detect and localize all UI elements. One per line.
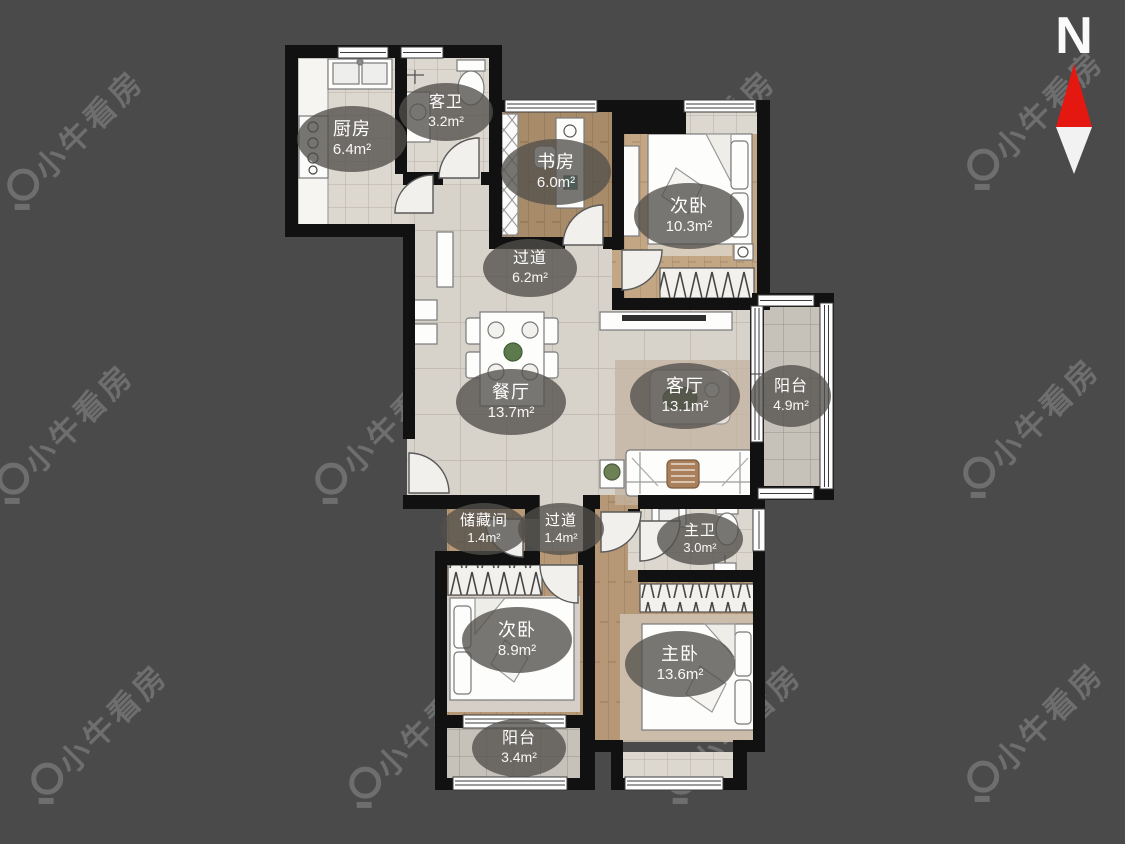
master-bedroom-furniture	[620, 584, 762, 742]
floor-balcony-south	[447, 727, 580, 778]
window	[684, 100, 756, 112]
threshold	[595, 570, 638, 582]
window	[758, 488, 814, 499]
dining-set	[466, 312, 558, 406]
window	[463, 715, 566, 728]
window	[758, 295, 814, 306]
window	[505, 100, 597, 112]
bay-ledge-north	[684, 112, 757, 134]
floorplan-drawing	[0, 0, 1125, 844]
window	[401, 47, 443, 58]
floor-bay-window	[623, 752, 733, 778]
window	[338, 47, 388, 58]
window	[753, 509, 765, 551]
window	[453, 777, 567, 790]
floorplan-canvas: 小牛看房 小牛看房 小牛看房 小牛看房 小牛看房 小牛看房 小牛看房 小牛看房 …	[0, 0, 1125, 844]
compass: N	[1038, 10, 1110, 176]
compass-north-label: N	[1038, 10, 1110, 62]
floor-balcony-east	[764, 307, 820, 486]
sliding-door	[751, 306, 763, 442]
window	[625, 777, 723, 790]
window	[820, 303, 833, 489]
compass-arrow-icon	[1051, 64, 1097, 176]
threshold	[540, 551, 578, 565]
